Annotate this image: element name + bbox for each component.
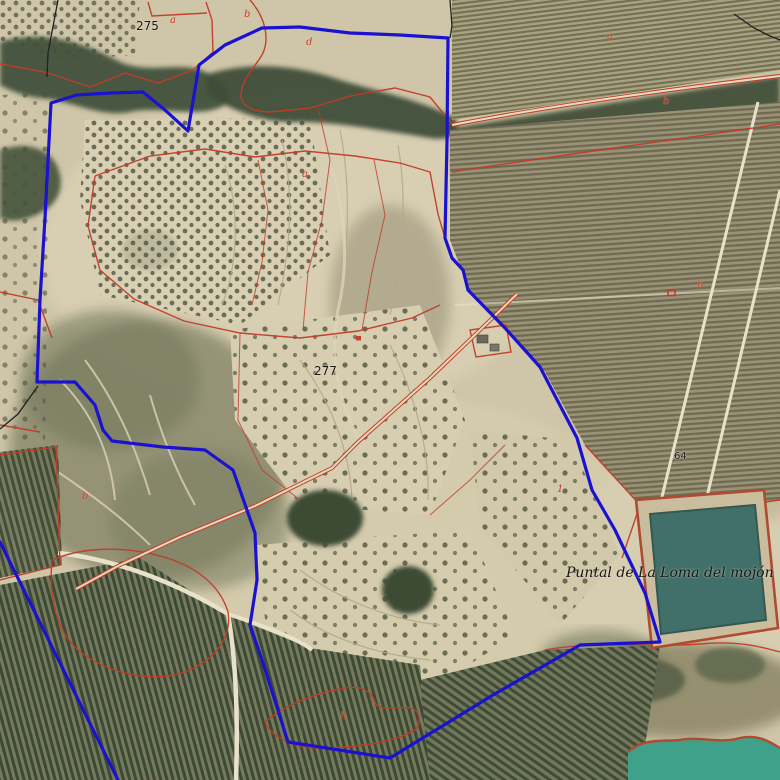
reservoir bbox=[636, 490, 778, 648]
orthophoto-image bbox=[0, 0, 780, 780]
irrigation-pond bbox=[628, 737, 780, 780]
map-canvas: 27527764Puntal de La Loma del mojónabdab… bbox=[0, 0, 780, 780]
